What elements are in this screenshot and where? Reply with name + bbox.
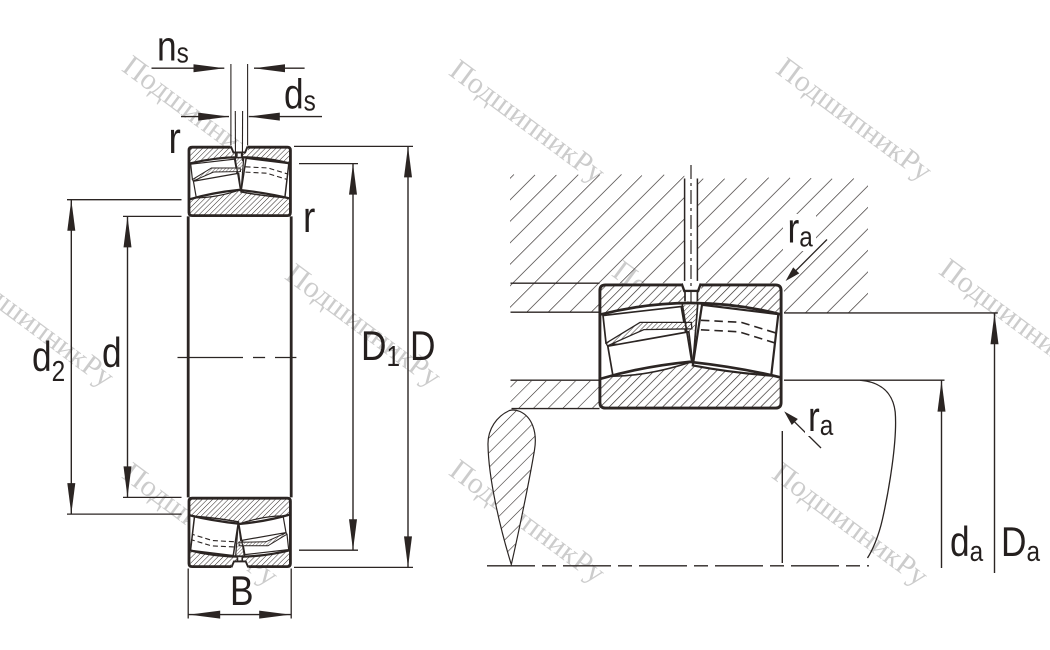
svg-text:r: r xyxy=(303,192,315,242)
svg-text:D: D xyxy=(410,323,435,370)
svg-text:r: r xyxy=(169,113,181,163)
svg-text:d: d xyxy=(102,330,122,377)
svg-text:B: B xyxy=(230,568,254,615)
